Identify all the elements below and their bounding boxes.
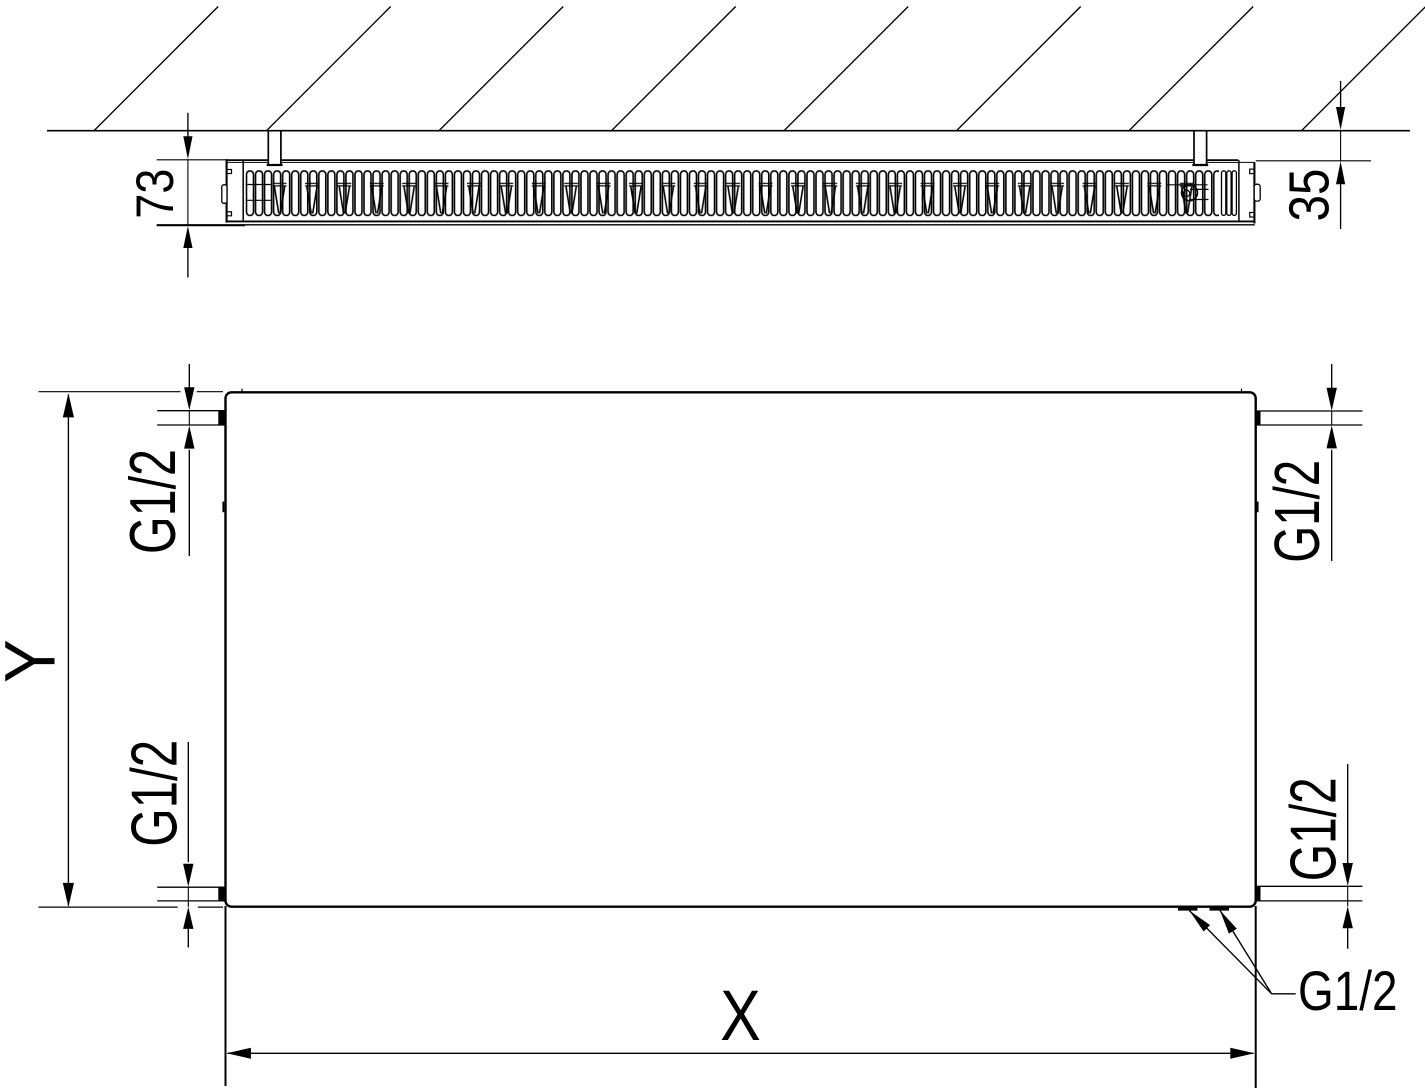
svg-text:G1/2: G1/2 — [1261, 460, 1333, 563]
svg-text:Y: Y — [0, 639, 71, 683]
svg-text:G1/2: G1/2 — [117, 740, 190, 847]
svg-text:G1/2: G1/2 — [1298, 959, 1398, 1022]
svg-text:73: 73 — [126, 169, 185, 219]
svg-text:35: 35 — [1278, 169, 1342, 222]
svg-text:X: X — [720, 976, 761, 1056]
svg-text:G1/2: G1/2 — [1277, 777, 1349, 881]
svg-text:G1/2: G1/2 — [116, 449, 189, 554]
